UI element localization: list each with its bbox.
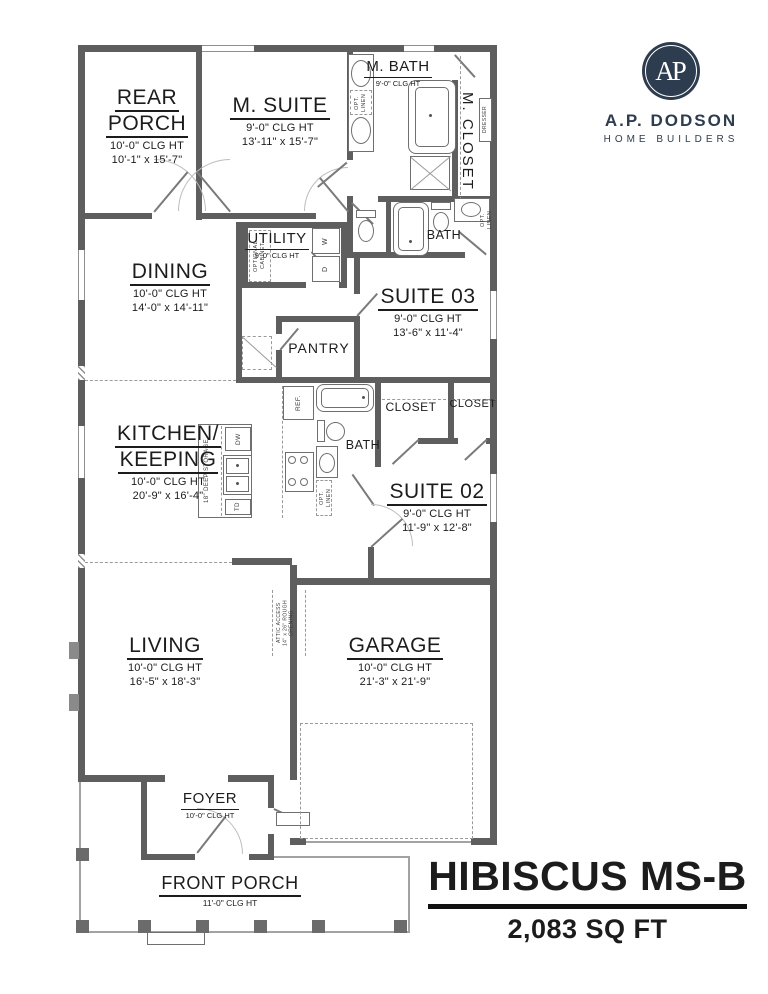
m-bath-name: M. BATH bbox=[364, 59, 431, 78]
wall-wc-divider bbox=[386, 202, 391, 258]
bathmid-tub-drain bbox=[362, 396, 365, 399]
porch-edge-bottom bbox=[79, 931, 410, 933]
plan-square-footage: 2,083 SQ FT bbox=[415, 914, 760, 945]
m-suite-clg: 9'-0" CLG HT bbox=[210, 122, 350, 134]
room-label-suite02: SUITE 02 9'-0" CLG HT 11'-9" x 12'-8" bbox=[374, 480, 500, 534]
dining-dims: 14'-0" x 14'-11" bbox=[96, 302, 244, 314]
wall-garage-bottom-left-stub bbox=[290, 838, 306, 845]
living-name: LIVING bbox=[127, 634, 203, 660]
plan-title: HIBISCUS MS-B bbox=[428, 853, 747, 909]
wall-closet1-bottom bbox=[418, 438, 448, 444]
dining-clg: 10'-0" CLG HT bbox=[96, 288, 244, 300]
floorplan-sheet: OPT. LINEN DRESSER OPT. LINEN W D OPTION… bbox=[0, 0, 768, 994]
builder-logo: AP A.P. DODSON HOME BUILDERS bbox=[596, 42, 746, 145]
room-label-m-bath: M. BATH 9'-0" CLG HT bbox=[352, 58, 444, 88]
logo-monogram-icon: AP bbox=[642, 42, 700, 100]
utility-name: UTILITY bbox=[245, 231, 308, 250]
trash-drawer-label: TD bbox=[235, 501, 243, 513]
attic-line3: OPENING bbox=[289, 592, 295, 654]
opt-linen-label-bathmid: OPT. LINEN bbox=[319, 482, 333, 514]
kitchen-name-1: KITCHEN/ bbox=[115, 422, 221, 448]
suite03-name: SUITE 03 bbox=[378, 285, 477, 311]
washer-letter: W bbox=[322, 233, 331, 249]
wc-toilet-tank bbox=[356, 210, 376, 218]
porch-post-1 bbox=[76, 848, 89, 861]
range-burner-2 bbox=[300, 456, 308, 464]
suite02-clg: 9'-0" CLG HT bbox=[374, 508, 500, 520]
mbath-tub-drain bbox=[429, 114, 432, 117]
rear-porch-dims: 10'-1" x 15'-7" bbox=[86, 154, 208, 166]
range-burner-1 bbox=[288, 456, 296, 464]
kitchen-name-2: KEEPING bbox=[118, 448, 219, 474]
opt-linen-line2: LINEN bbox=[487, 198, 494, 242]
porch-post-7 bbox=[394, 920, 407, 933]
foyer-clg: 10'-0" CLG HT bbox=[168, 812, 252, 820]
ceiling-break-kitchen-living bbox=[85, 562, 232, 563]
bathmid-sink bbox=[319, 453, 335, 473]
mbath-sink-2 bbox=[351, 117, 371, 144]
title-block: HIBISCUS MS-B 2,083 SQ FT bbox=[415, 853, 760, 945]
wall-kitchen-living-stub bbox=[232, 558, 292, 565]
wall-msuite-bottom bbox=[196, 213, 316, 219]
room-label-utility: UTILITY 9'-0" CLG HT bbox=[243, 230, 311, 260]
wall-utility-bottom bbox=[242, 282, 306, 288]
porch-steps bbox=[147, 932, 205, 945]
wall-exterior-top bbox=[78, 45, 497, 52]
door-leaf-bath-mid bbox=[352, 474, 375, 506]
builder-tagline: HOME BUILDERS bbox=[596, 134, 746, 145]
opt-linen-line2: LINEN bbox=[361, 91, 368, 115]
kitchen-clg: 10'-0" CLG HT bbox=[86, 476, 250, 488]
opt-linen-line2: LINEN bbox=[326, 482, 333, 514]
bathtop-tub-drain bbox=[409, 240, 412, 243]
window-msuite-top bbox=[202, 45, 254, 52]
dryer-letter: D bbox=[322, 261, 331, 277]
wall-foyer-left bbox=[141, 775, 147, 860]
wall-porch-bottom-left bbox=[78, 213, 152, 219]
rear-porch-clg: 10'-0" CLG HT bbox=[86, 140, 208, 152]
m-bath-clg: 9'-0" CLG HT bbox=[352, 80, 444, 88]
pantry-name: PANTRY bbox=[288, 340, 350, 356]
room-label-foyer: FOYER 10'-0" CLG HT bbox=[168, 790, 252, 820]
wall-closet2-bottom-left bbox=[448, 438, 458, 444]
wall-garage-top bbox=[290, 578, 497, 585]
garage-dims: 21'-3" x 21'-9" bbox=[320, 676, 470, 688]
door-leaf-closet1 bbox=[392, 439, 419, 465]
ceiling-break-dining-kitchen bbox=[85, 380, 236, 381]
dresser-text: DRESSER bbox=[482, 101, 488, 139]
room-label-dining: DINING 10'-0" CLG HT 14'-0" x 14'-11" bbox=[96, 260, 244, 314]
wall-garage-bottom-right-stub bbox=[471, 838, 497, 845]
wall-utility-right bbox=[341, 222, 347, 288]
front-porch-name: FRONT PORCH bbox=[159, 874, 300, 897]
wall-suite03-left bbox=[354, 258, 360, 294]
wall-foyer-bottom-left bbox=[141, 854, 195, 860]
wall-pantry-left-upper bbox=[276, 316, 282, 334]
fridge-label: REF. bbox=[295, 391, 303, 415]
logo-monogram-text: AP bbox=[655, 56, 687, 87]
trash-drawer-text: TD bbox=[235, 501, 243, 513]
window-frame-living-left-1 bbox=[69, 642, 79, 659]
window-frame-living-left-2 bbox=[69, 694, 79, 711]
wall-bathmid-right bbox=[375, 383, 381, 467]
wall-hatch-2 bbox=[78, 554, 85, 568]
garage-clg: 10'-0" CLG HT bbox=[320, 662, 470, 674]
builder-company-name: A.P. DODSON bbox=[596, 111, 746, 131]
room-label-garage: GARAGE 10'-0" CLG HT 21'-3" x 21'-9" bbox=[320, 634, 470, 688]
wc-toilet-bowl bbox=[358, 220, 374, 242]
porch-edge-top-right bbox=[274, 856, 410, 858]
garage-door-dashed bbox=[300, 723, 473, 839]
rear-porch-name-1: REAR bbox=[115, 86, 179, 112]
fridge-text: REF. bbox=[295, 391, 303, 415]
m-suite-dims: 13'-11" x 15'-7" bbox=[210, 136, 350, 148]
suite03-dims: 13'-6" x 11'-4" bbox=[365, 327, 491, 339]
foyer-name: FOYER bbox=[181, 791, 239, 810]
wall-pantry-right bbox=[354, 316, 360, 383]
wall-exterior-left bbox=[78, 45, 85, 782]
opt-linen-label-mbath: OPT. LINEN bbox=[354, 91, 368, 115]
dining-name: DINING bbox=[130, 260, 211, 286]
opt-linen-label-bathtop: OPT. LINEN bbox=[480, 198, 494, 242]
wall-closet2-bottom-right bbox=[486, 438, 497, 444]
attic-access-note: ATTIC ACCESS 14" x 26" ROUGH OPENING bbox=[276, 592, 295, 654]
range-burner-3 bbox=[288, 478, 296, 486]
wall-closet-divider bbox=[448, 383, 454, 444]
wall-exterior-right bbox=[490, 45, 497, 845]
room-label-living: LIVING 10'-0" CLG HT 16'-5" x 18'-3" bbox=[92, 634, 238, 688]
opt-linen-line1: OPT. bbox=[480, 198, 487, 242]
mbath-tub-inner bbox=[415, 87, 449, 147]
room-label-front-porch: FRONT PORCH 11'-0" CLG HT bbox=[138, 874, 322, 908]
window-dining-left bbox=[78, 250, 85, 300]
porch-post-5 bbox=[254, 920, 267, 933]
wall-suite02-hall bbox=[368, 547, 374, 578]
washer-label: W bbox=[322, 233, 331, 249]
bath-top-name: BATH bbox=[427, 228, 461, 242]
room-label-pantry: PANTRY bbox=[286, 340, 352, 356]
wall-hatch-1 bbox=[78, 366, 85, 380]
dresser-label: DRESSER bbox=[482, 101, 488, 139]
window-mbath-top bbox=[404, 45, 434, 52]
m-suite-name: M. SUITE bbox=[230, 94, 329, 120]
m-closet-name: M. CLOSET bbox=[459, 92, 476, 191]
door-leaf-closet2 bbox=[465, 439, 488, 461]
closet1-name: CLOSET bbox=[385, 400, 436, 414]
room-label-bath-top: BATH bbox=[418, 228, 470, 242]
dryer-label: D bbox=[322, 261, 331, 277]
porch-post-6 bbox=[312, 920, 325, 933]
room-label-kitchen: KITCHEN/ KEEPING 10'-0" CLG HT 20'-9" x … bbox=[86, 422, 250, 502]
wall-pantry-top bbox=[276, 316, 360, 322]
porch-post-2 bbox=[76, 920, 89, 933]
rear-porch-name-2: PORCH bbox=[106, 112, 188, 138]
range-burner-4 bbox=[300, 478, 308, 486]
garage-door-threshold-line bbox=[306, 841, 471, 843]
closet2-name: CLOSET bbox=[449, 398, 496, 410]
attic-line2: 14" x 26" ROUGH bbox=[282, 592, 288, 654]
utility-clg: 9'-0" CLG HT bbox=[243, 252, 311, 260]
wall-living-front bbox=[78, 775, 145, 782]
porch-edge-right bbox=[408, 856, 410, 933]
bathmid-toilet-tank bbox=[317, 420, 325, 442]
room-label-rear-porch: REAR PORCH 10'-0" CLG HT 10'-1" x 15'-7" bbox=[86, 86, 208, 166]
window-kitchen-left bbox=[78, 426, 85, 478]
room-label-closet1: CLOSET bbox=[377, 400, 445, 414]
front-porch-clg: 11'-0" CLG HT bbox=[138, 899, 322, 908]
room-label-m-suite: M. SUITE 9'-0" CLG HT 13'-11" x 15'-7" bbox=[210, 94, 350, 148]
room-label-suite03: SUITE 03 9'-0" CLG HT 13'-6" x 11'-4" bbox=[365, 285, 491, 339]
garage-name: GARAGE bbox=[347, 634, 444, 660]
living-clg: 10'-0" CLG HT bbox=[92, 662, 238, 674]
living-dims: 16'-5" x 18'-3" bbox=[92, 676, 238, 688]
window-suite03-right bbox=[490, 291, 497, 339]
bath-mid-name: BATH bbox=[346, 438, 380, 452]
wall-mid bbox=[236, 377, 497, 383]
suite03-clg: 9'-0" CLG HT bbox=[365, 313, 491, 325]
room-label-bath-mid: BATH bbox=[338, 438, 388, 452]
door-leaf-mcloset bbox=[454, 54, 475, 77]
opt-linen-line1: OPT. bbox=[354, 91, 361, 115]
room-label-closet2: CLOSET bbox=[448, 398, 498, 410]
bathtop-toilet-tank bbox=[431, 202, 451, 210]
suite02-dims: 11'-9" x 12'-8" bbox=[374, 522, 500, 534]
opt-linen-line1: OPT. bbox=[319, 482, 326, 514]
wall-foyer-right-upper bbox=[268, 775, 274, 808]
room-label-m-closet: M. CLOSET bbox=[459, 92, 476, 222]
suite02-name: SUITE 02 bbox=[387, 480, 486, 506]
kitchen-dims: 20'-9" x 16'-4" bbox=[86, 490, 250, 502]
